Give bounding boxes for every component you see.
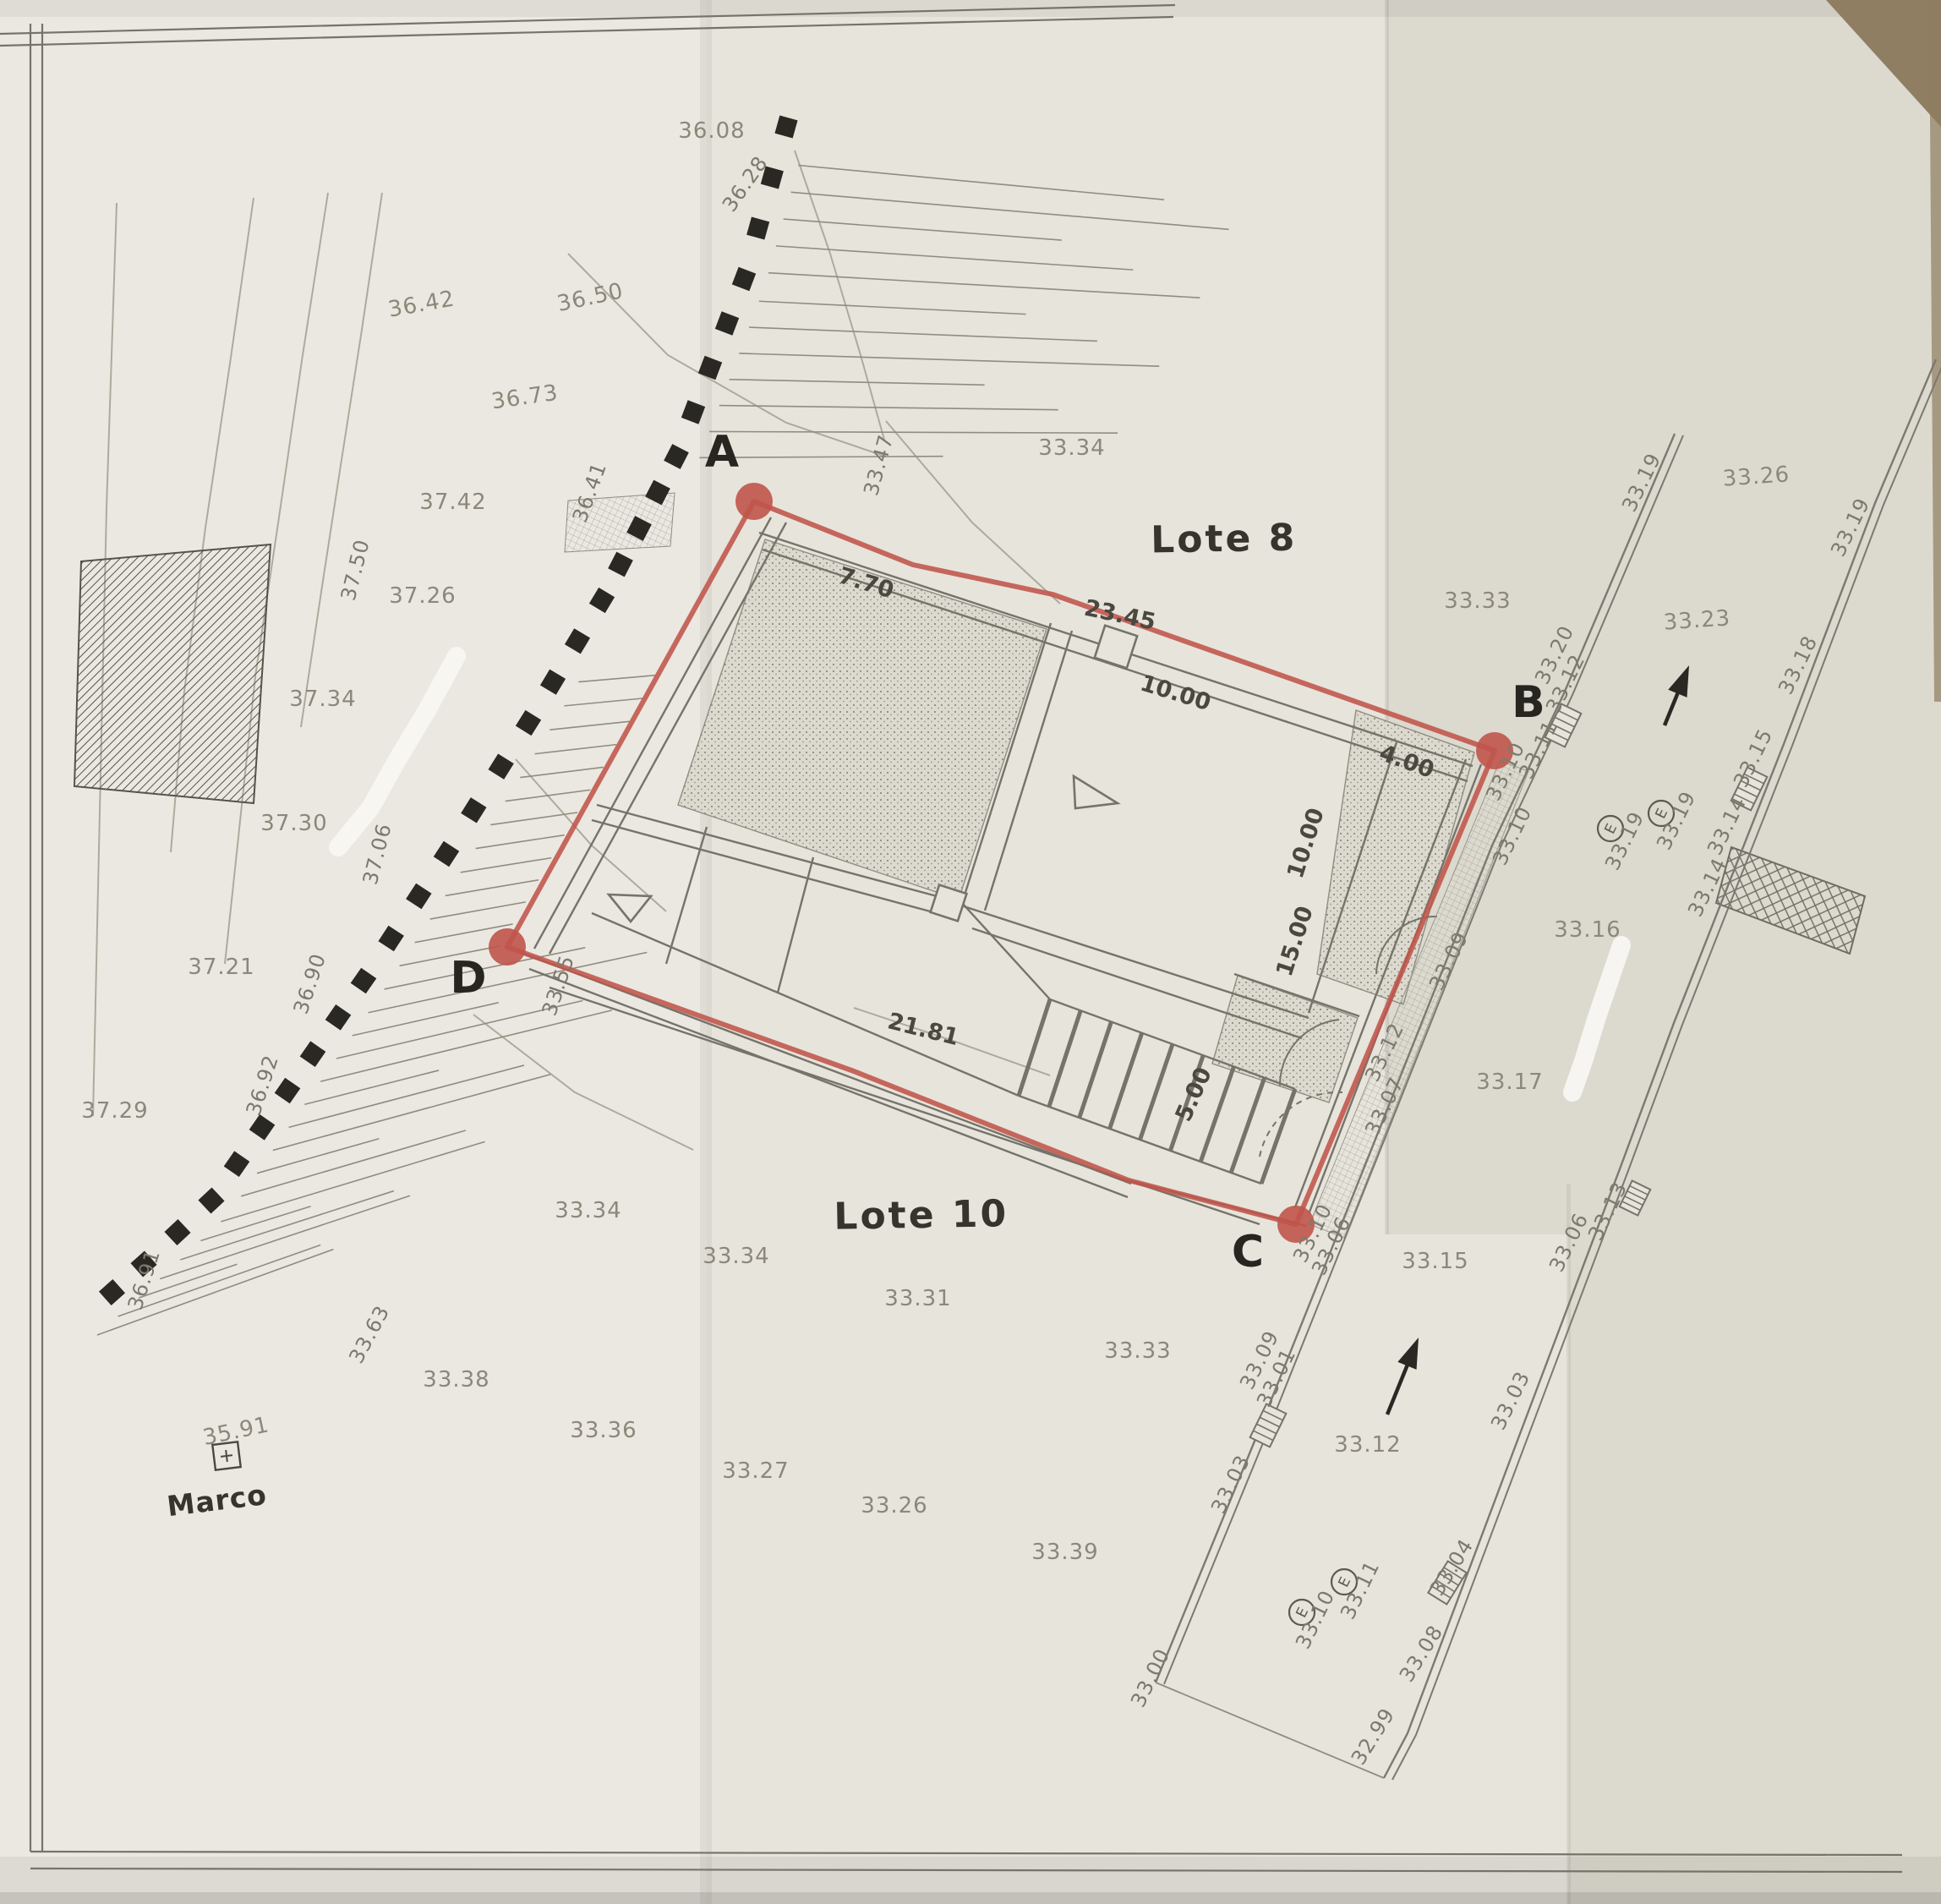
spot-elevation-label-text: 37.34 — [289, 687, 356, 712]
spot-elevation-label-text: 37.29 — [81, 1098, 148, 1124]
site-plan-drawing: EEEEABCDLote 8Lote 107.7023.4510.004.001… — [0, 0, 1941, 1904]
spot-elevation-label-text: 33.38 — [423, 1367, 489, 1392]
spot-elevation-label-text: 37.30 — [260, 811, 327, 836]
spot-elevation-label-text: 37.26 — [389, 583, 456, 609]
spot-elevation-label-text: 33.36 — [570, 1418, 637, 1443]
corner-label-text: A — [705, 427, 739, 478]
paper-background — [0, 0, 1941, 1904]
spot-elevation-label-text: 33.34 — [703, 1244, 769, 1269]
spot-elevation-label-text: 33.12 — [1334, 1432, 1401, 1458]
spot-elevation-label-text: 33.26 — [861, 1493, 927, 1518]
spot-elevation-label-text: 33.23 — [1663, 605, 1731, 635]
lot-label-text: Lote 8 — [1151, 516, 1298, 561]
spot-elevation-label-text: 33.33 — [1444, 588, 1511, 614]
corner-label-text: D — [450, 953, 486, 1004]
spot-elevation-label-text: 33.27 — [722, 1458, 789, 1484]
spot-elevation-label-text: 37.42 — [419, 490, 486, 515]
red-corner-dot — [735, 483, 773, 520]
spot-elevation-label-text: 33.34 — [555, 1198, 621, 1223]
spot-elevation-label-text: 33.26 — [1722, 462, 1791, 491]
spot-elevation-label-text: 33.33 — [1104, 1338, 1171, 1364]
spot-elevation-label-text: 33.16 — [1554, 917, 1621, 943]
spot-elevation-label-text: 33.31 — [884, 1286, 951, 1311]
spot-elevation-label-text: 33.15 — [1402, 1249, 1468, 1274]
spot-elevation-label-text: 33.34 — [1038, 435, 1105, 461]
lot-label-text: Lote 10 — [834, 1192, 1009, 1239]
spot-elevation-label-text: 37.21 — [188, 955, 254, 980]
spot-elevation-label-text: 33.39 — [1031, 1540, 1098, 1565]
spot-elevation-label-text: 33.17 — [1476, 1070, 1543, 1095]
corner-label-text: C — [1232, 1227, 1264, 1278]
spot-elevation-label-text: 36.08 — [678, 118, 745, 144]
site-plan-photo: EEEEABCDLote 8Lote 107.7023.4510.004.001… — [0, 0, 1941, 1904]
red-corner-dot — [489, 928, 526, 966]
